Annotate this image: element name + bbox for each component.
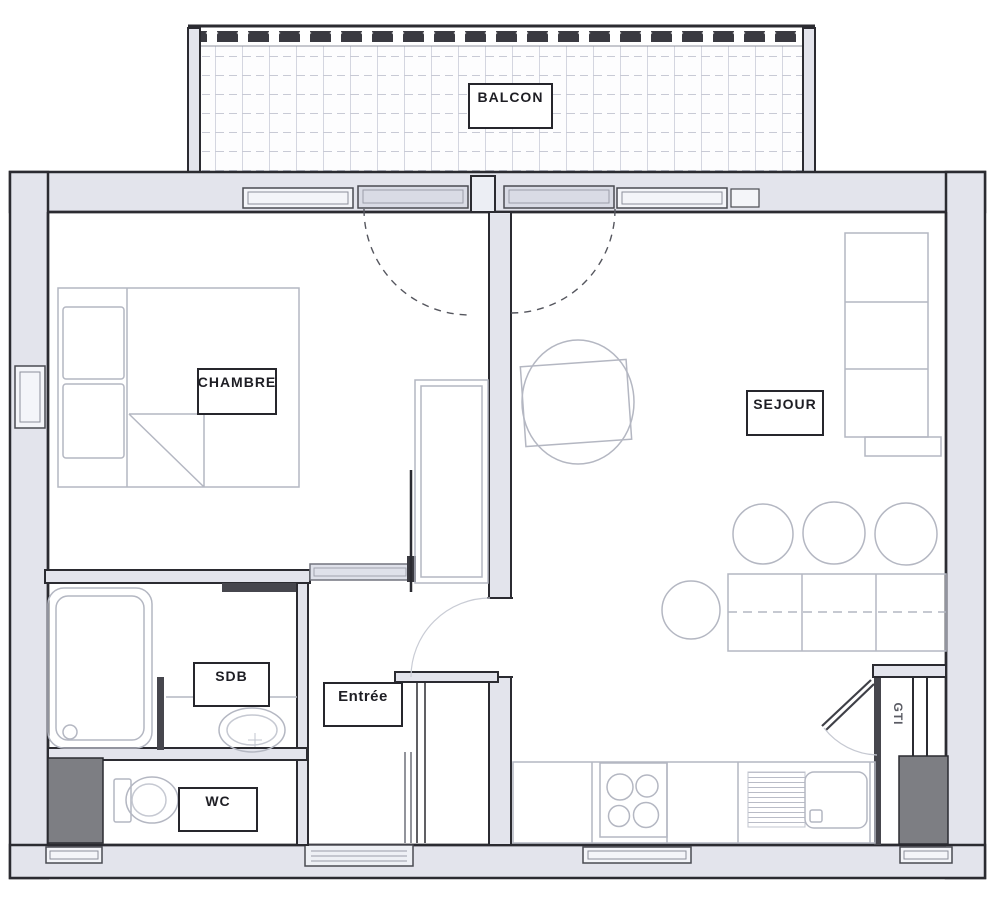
room-label-balcon: BALCON [468,83,553,129]
kitchen-sink [748,772,867,828]
sink-basin [805,772,867,828]
gti-shelf-lines [913,677,927,756]
sdb-entree-wall [297,583,308,845]
sdb-door-leaf[interactable] [222,583,302,592]
chambre-balcony-door-arc [364,209,470,315]
bathtub-drain [63,725,77,739]
balcony-railing [196,31,806,42]
bathtub [48,588,152,748]
wardrobe [415,380,488,583]
burner [636,775,658,797]
sink-drain [810,810,822,822]
room-label-sejour: SEJOUR [746,390,824,436]
dining-table [728,574,946,651]
entree-closet-side [417,682,425,843]
floor-plan-drawing [0,0,1000,904]
duct-shaft-right [899,756,948,844]
central-wall-opening [486,598,514,677]
right-wall [946,172,985,878]
room-label-entree: Entrée [323,682,403,727]
room-label-sdb: SDB [193,662,270,707]
chambre-door-leaf[interactable] [310,564,410,580]
pillow [63,307,124,379]
balcony-door-leaf-chambre[interactable] [358,186,468,208]
bottom-wall [10,845,985,878]
burner [609,806,630,827]
window-left-wall [15,366,45,428]
window-bottom-center [583,847,691,863]
duct-shaft-left [48,758,103,843]
window-bottom-left [46,847,102,863]
entree-closet-door-line [405,752,411,843]
burner [607,774,633,800]
room-label-wc: WC [178,787,258,832]
chair [875,503,937,565]
sofa [845,233,941,456]
drainer [748,772,805,827]
window-top-left [243,188,353,208]
gti-door[interactable] [822,680,877,755]
sejour-balcony-door-arc [511,209,615,313]
chair [803,502,865,564]
left-wall [10,172,48,878]
balcony-door-leaf-sejour[interactable] [504,186,614,208]
kitchen-counter [513,762,875,843]
central-wall [489,212,511,845]
armchair [520,340,634,464]
entry-door[interactable] [305,845,413,866]
top-wall-pier [471,176,495,212]
chair [662,581,720,639]
stove [600,763,667,837]
window-bottom-right [900,847,952,863]
burner [634,803,659,828]
window-top-right [617,188,759,208]
top-wall [10,172,985,212]
dining-chairs [662,502,937,639]
room-label-chambre: CHAMBRE [197,368,277,415]
bed-fold [129,414,204,487]
gti-door-arc [824,728,877,755]
chambre-south-wall [45,570,310,583]
floor-plan: BALCON CHAMBRE SEJOUR SDB Entrée WC GTI [0,0,1000,904]
bathtub-stub-wall [157,677,164,750]
gti-door-leaf [822,680,874,730]
pillow [63,384,124,458]
chair [733,504,793,564]
room-label-gti: GTI [888,696,908,732]
gti-top-wall [873,665,946,677]
balcony-left-wall [188,28,200,176]
entree-sejour-door-arc [411,598,490,677]
washbasin [219,708,285,752]
interior-walls [45,212,946,845]
balcony-right-wall [803,28,815,176]
toilet [114,777,178,823]
